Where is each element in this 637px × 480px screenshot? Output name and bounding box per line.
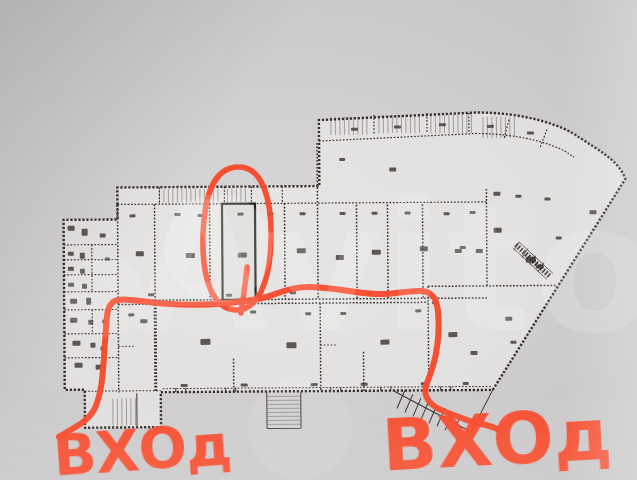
floor-plan-svg: ВХОд ВХОд Avito (0, 0, 637, 480)
watermark-text: Avito (132, 165, 637, 372)
watermark-logo-circle (248, 376, 352, 480)
floor-plan-photo: ВХОд ВХОд Avito (0, 0, 637, 480)
entrance-label-right: ВХОд (380, 392, 614, 480)
entrance-label-left: ВХОд (51, 411, 233, 480)
